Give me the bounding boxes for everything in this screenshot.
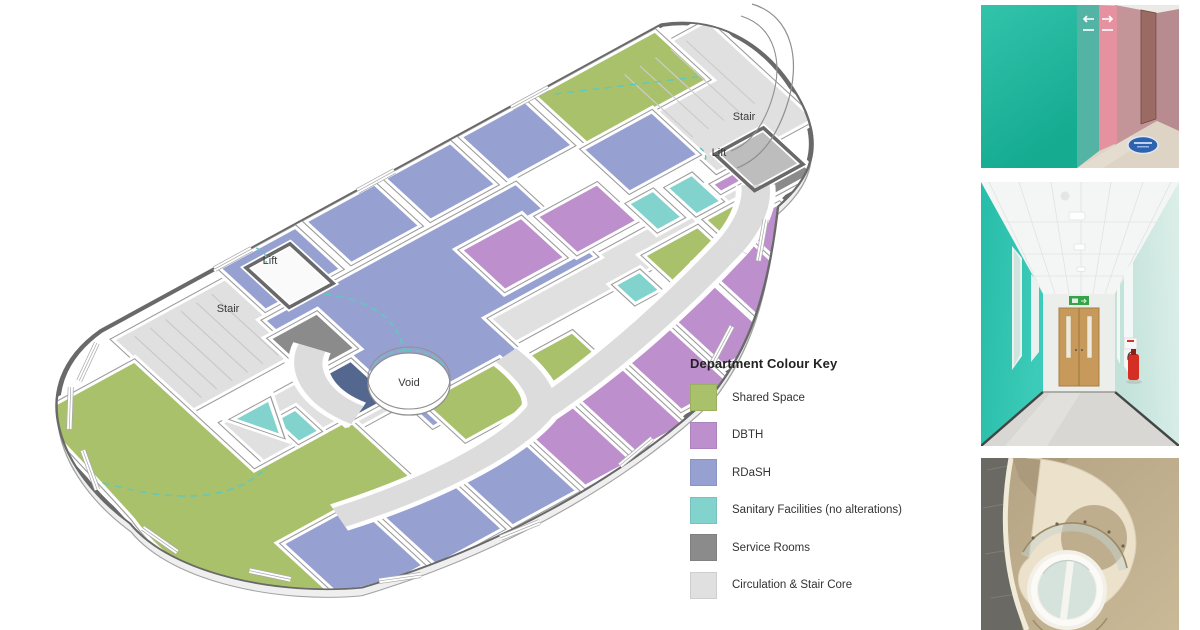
legend-swatch-dbth	[690, 422, 717, 449]
legend-item-dbth: DBTH	[690, 422, 990, 449]
legend-title: Department Colour Key	[690, 356, 990, 371]
legend-swatch-shared	[690, 384, 717, 411]
legend-item-circulation: Circulation & Stair Core	[690, 572, 990, 599]
ceiling-light	[1077, 267, 1085, 272]
end-door	[1141, 10, 1156, 124]
legend-label: Sanitary Facilities (no alterations)	[732, 504, 902, 516]
teal-feature-wall	[981, 5, 1077, 168]
floor-sticker	[1128, 137, 1158, 154]
ceiling-light	[1074, 244, 1085, 250]
sign-text-right	[1102, 29, 1113, 31]
right-door-frame	[1117, 282, 1120, 364]
page-canvas: StairLiftStairLiftVoid Department Colour…	[0, 0, 1200, 630]
photo-stair-rooflight	[981, 458, 1179, 630]
exit-sign	[1069, 296, 1089, 305]
smoke-detector	[1061, 192, 1070, 201]
plan-label-stair-0: Stair	[217, 303, 240, 315]
legend-item-service: Service Rooms	[690, 534, 990, 561]
legend-label: Service Rooms	[732, 542, 810, 554]
ceiling-light	[1069, 212, 1085, 220]
legend-swatch-rdash	[690, 459, 717, 486]
legend-label: Shared Space	[732, 392, 805, 404]
timber-double-door	[1059, 308, 1099, 386]
left-door-frame	[1031, 274, 1039, 362]
legend-item-sanitary: Sanitary Facilities (no alterations)	[690, 497, 990, 524]
legend-label: RDaSH	[732, 467, 771, 479]
plan-label-void-4: Void	[398, 377, 419, 389]
plan-label-lift-1: Lift	[263, 255, 278, 267]
legend-rows: Shared SpaceDBTHRDaSHSanitary Facilities…	[690, 384, 990, 599]
sign-text-left	[1083, 29, 1094, 31]
plan-label-lift-3: Lift	[712, 147, 727, 159]
pink-glass-panel	[1099, 5, 1117, 151]
photo-corridor-signage	[981, 5, 1179, 168]
legend-item-shared: Shared Space	[690, 384, 990, 411]
right-wall	[1157, 9, 1179, 131]
legend-swatch-sanitary	[690, 497, 717, 524]
legend-swatch-circulation	[690, 572, 717, 599]
legend-item-rdash: RDaSH	[690, 459, 990, 486]
circular-rooflight	[1027, 550, 1107, 630]
legend-label: DBTH	[732, 429, 763, 441]
left-door	[1014, 250, 1020, 366]
window-band	[67, 387, 74, 429]
legend-label: Circulation & Stair Core	[732, 579, 852, 591]
plan-label-stair-2: Stair	[733, 111, 756, 123]
legend-swatch-service	[690, 534, 717, 561]
photo-corridor-teal	[981, 182, 1179, 446]
department-colour-key: Department Colour Key Shared SpaceDBTHRD…	[690, 356, 990, 609]
